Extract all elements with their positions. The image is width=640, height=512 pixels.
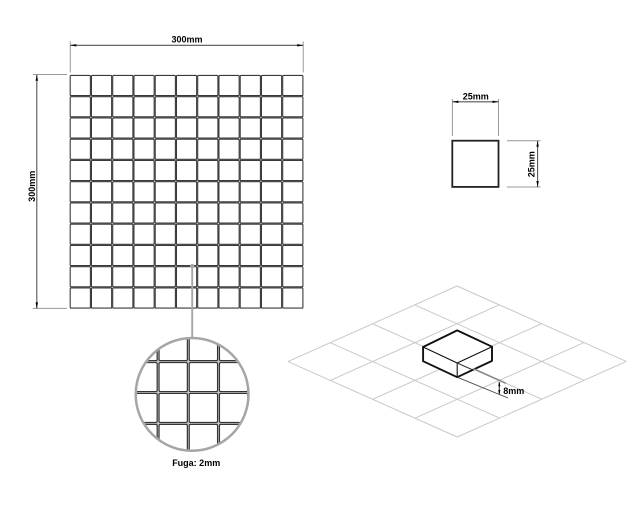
- svg-text:Fuga: 2mm: Fuga: 2mm: [172, 458, 220, 468]
- svg-text:8mm: 8mm: [503, 386, 524, 396]
- svg-text:300mm: 300mm: [27, 171, 37, 202]
- svg-text:25mm: 25mm: [527, 151, 537, 177]
- svg-text:25mm: 25mm: [463, 91, 489, 101]
- svg-text:300mm: 300mm: [171, 35, 202, 45]
